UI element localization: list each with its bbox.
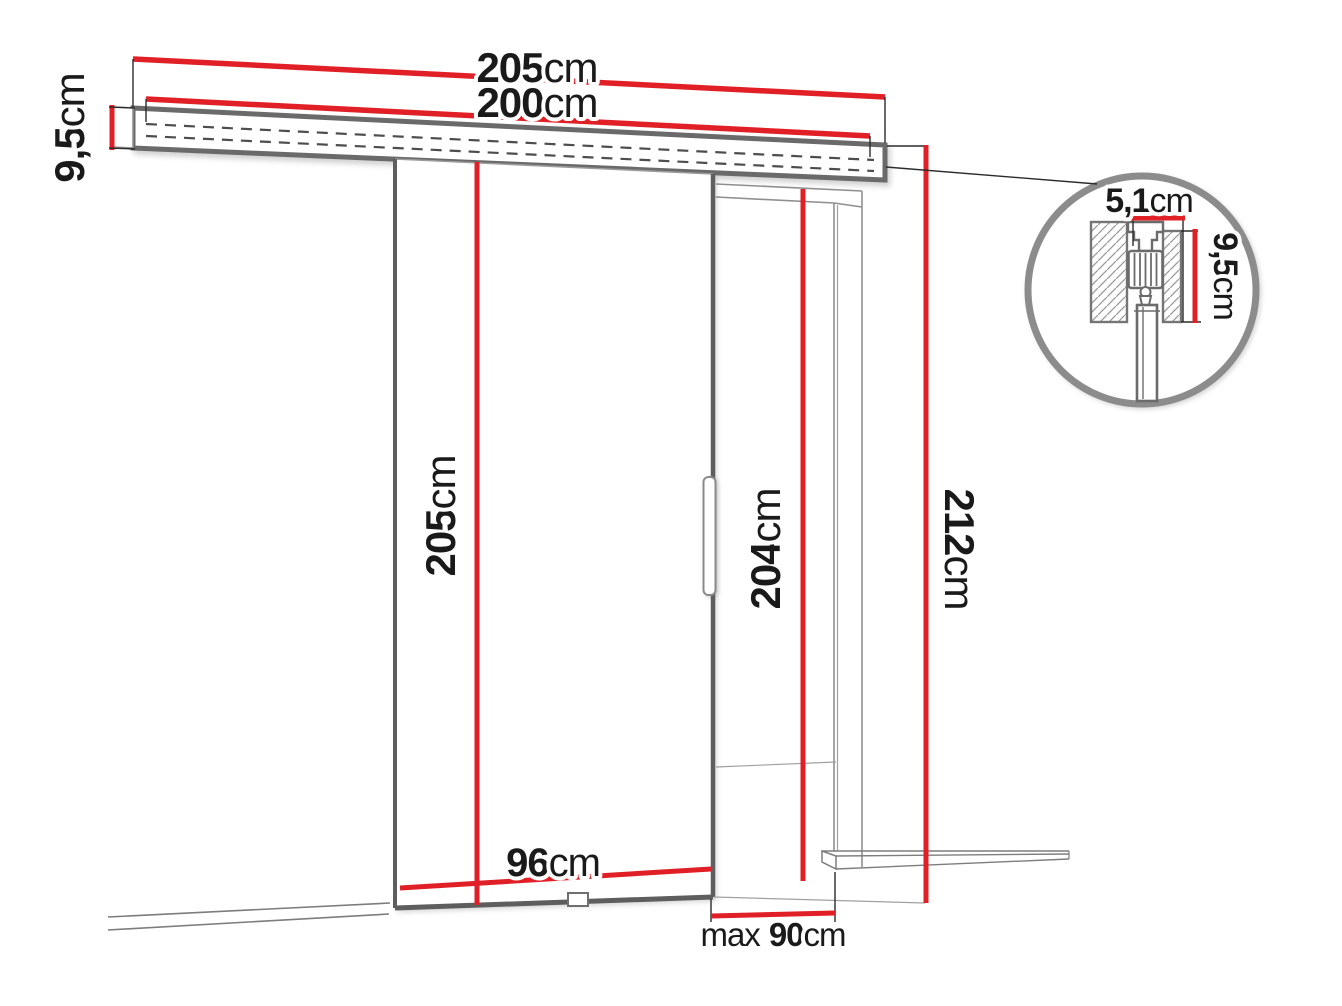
detail-width-label: 5,1cm	[1105, 182, 1193, 220]
floor-line-upper	[108, 903, 390, 917]
detail-height-label: 9,5cm	[1206, 232, 1244, 320]
door-handle	[704, 477, 716, 595]
detail-callout-line	[886, 167, 1097, 184]
door-frame	[716, 184, 862, 867]
rail-left-end-cap	[112, 107, 133, 148]
floor-skirting-lines-left	[108, 903, 390, 930]
detail-right-hatched-panel	[1163, 231, 1181, 322]
detail-door-panel-section	[1137, 305, 1157, 401]
threshold-bottom-edge	[836, 859, 1069, 869]
opening-height-label: 204cm	[742, 488, 789, 609]
floor-line-lower	[108, 914, 389, 930]
opening-width-label: max90cm	[700, 916, 845, 953]
rail-height-label: 9,5cm	[46, 73, 93, 182]
detail-hanger-bolt	[1140, 296, 1151, 305]
opening-interior-floor-line	[716, 762, 836, 767]
rail-cross-section-detail: 5,1cm 9,5cm	[1028, 176, 1256, 404]
threshold-bar	[822, 851, 1069, 869]
door-width-label: 96cm	[506, 841, 600, 885]
diagram-canvas: 205cm 200cm 9,5cm	[0, 0, 1342, 1006]
frame-header-end-bottom	[834, 203, 862, 207]
threshold-end-face	[822, 851, 836, 869]
rail-height-tick-top	[109, 107, 135, 108]
sliding-door-diagram: 205cm 200cm 9,5cm	[0, 0, 1342, 1006]
detail-left-hatched-panel	[1091, 222, 1127, 322]
floor-reference-line	[714, 897, 925, 903]
frame-dimensions: 204cm 212cm max90cm	[700, 145, 983, 953]
frame-header-bottom-line	[716, 197, 834, 203]
rail-track-length-label: 200cm	[476, 79, 597, 126]
total-height-label: 212cm	[936, 488, 983, 609]
rail-height-tick-bottom	[109, 148, 135, 149]
floor-guide	[568, 893, 588, 906]
frame-header-top-line	[716, 184, 862, 191]
door-height-label: 205cm	[417, 455, 464, 576]
threshold-mid-edge	[836, 854, 1069, 856]
